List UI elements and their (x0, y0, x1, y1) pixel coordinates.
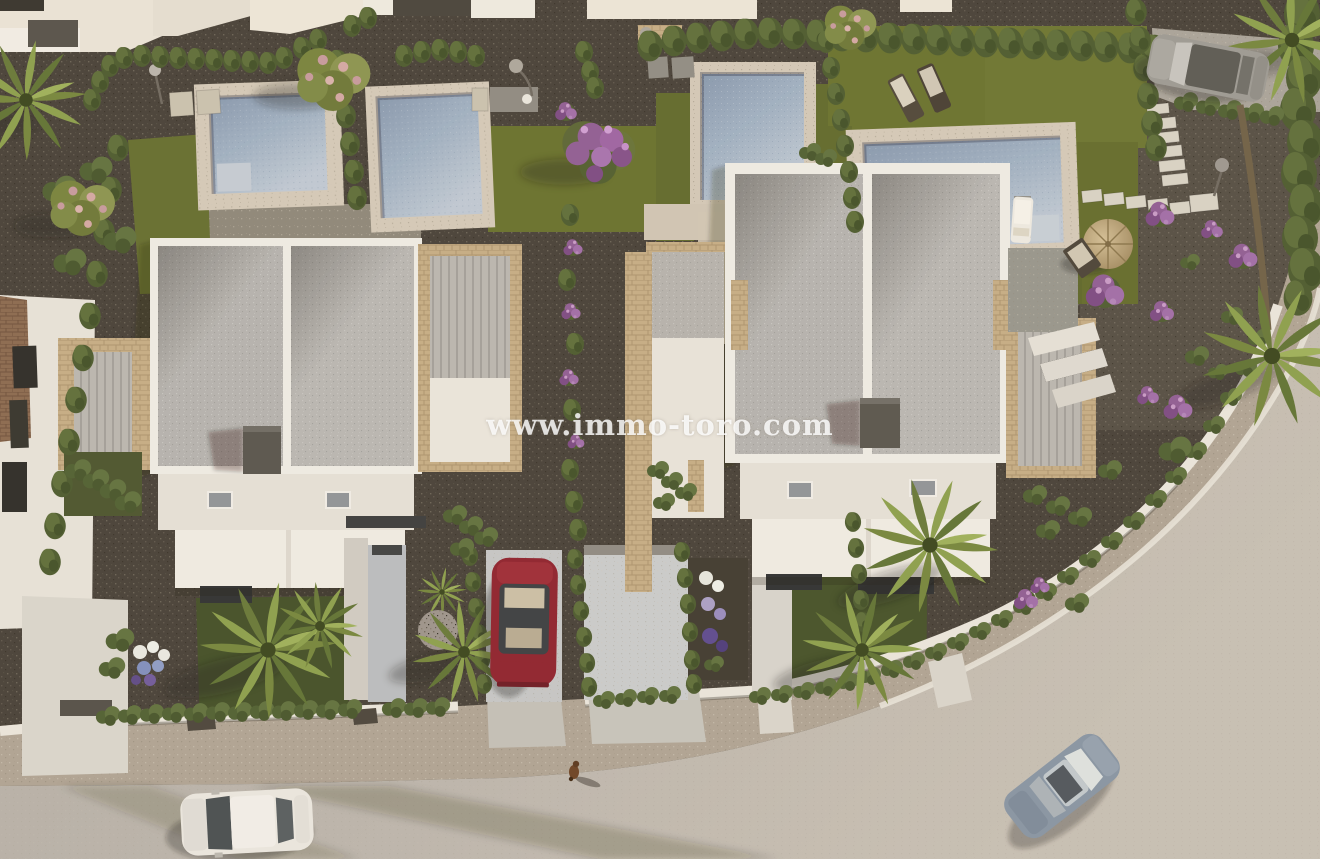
aerial-development-render: www.immo-toro.com (0, 0, 1320, 859)
render-canvas (0, 0, 1320, 859)
warm-light-overlay (0, 0, 1320, 859)
